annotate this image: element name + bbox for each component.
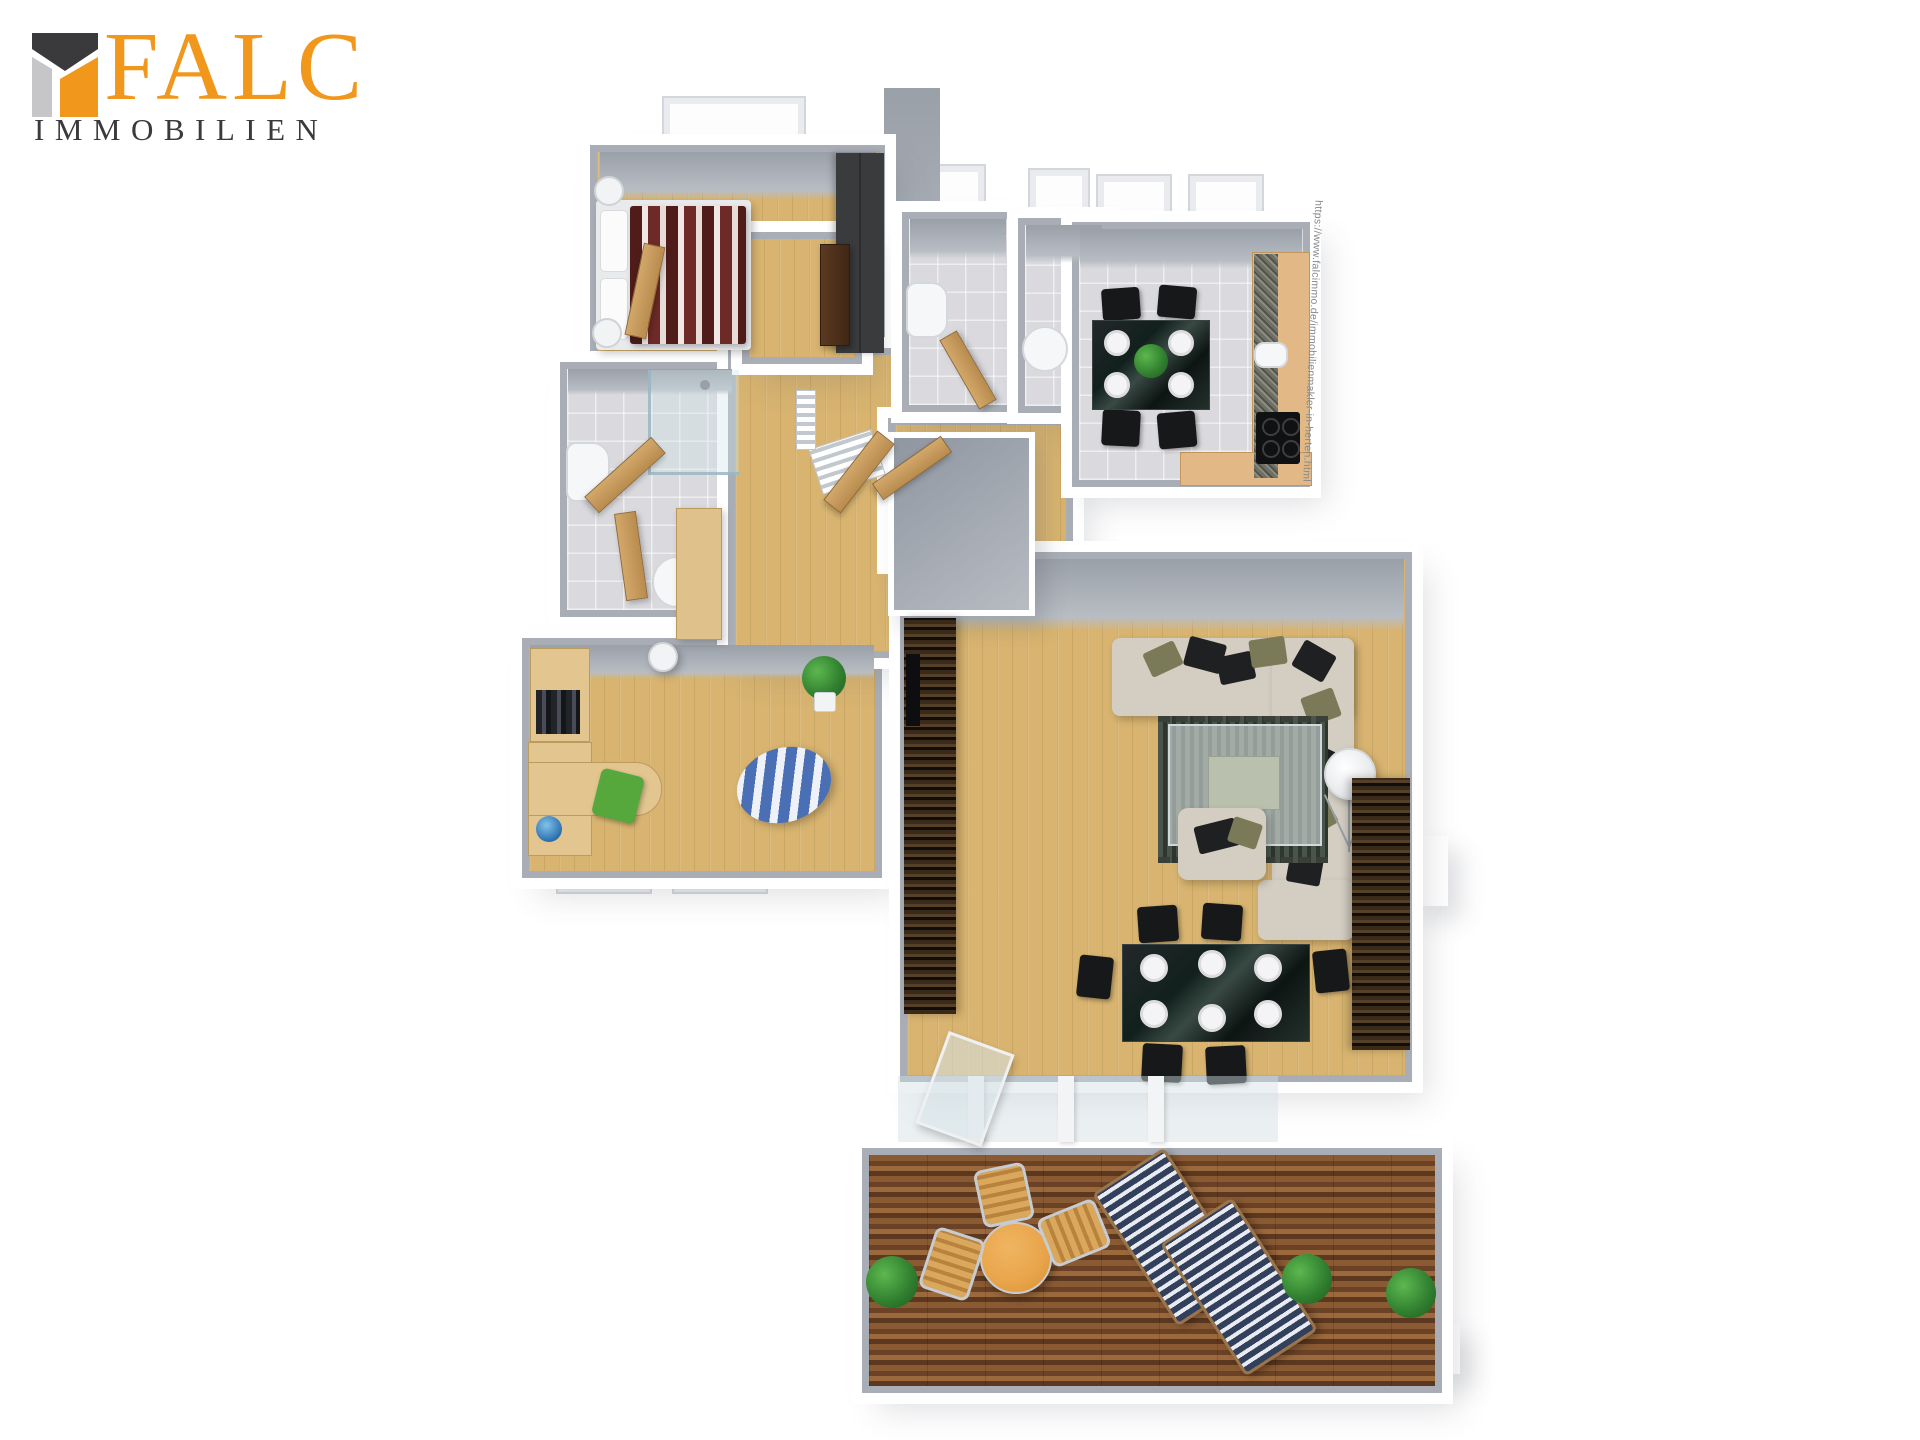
- plant-pot: [814, 692, 836, 712]
- bedside-lamp: [594, 176, 624, 206]
- plate: [1140, 1000, 1168, 1028]
- plate: [1168, 372, 1194, 398]
- glass-mullion: [1058, 1076, 1074, 1142]
- wall-face: [600, 152, 876, 200]
- cushion: [1248, 636, 1288, 669]
- round-basin: [1022, 326, 1068, 372]
- plate: [1140, 954, 1168, 982]
- kitchen-sink: [1254, 342, 1288, 368]
- floor-plan: https://www.falcimmo.de/immobilienmakler…: [0, 0, 1920, 1440]
- kitchen-chair: [1157, 410, 1198, 449]
- burner-icon: [1282, 418, 1300, 436]
- plate: [1168, 330, 1194, 356]
- kitchen-chair: [1101, 287, 1141, 322]
- plate: [1198, 1004, 1226, 1032]
- plate: [1104, 372, 1130, 398]
- wall-protrusion-right: [1408, 836, 1448, 906]
- books: [536, 690, 580, 734]
- bedside-lamp: [592, 318, 622, 348]
- terrace-plant: [1386, 1268, 1436, 1318]
- burner-icon: [1262, 418, 1280, 436]
- kitchen-window: [1096, 174, 1172, 224]
- plate: [1254, 954, 1282, 982]
- wall-face: [910, 219, 1006, 259]
- sofa-chaise: [1258, 880, 1354, 940]
- kitchen-window: [1188, 174, 1264, 224]
- plate: [1104, 330, 1130, 356]
- burner-icon: [1282, 440, 1300, 458]
- radiator: [796, 390, 816, 450]
- burner-icon: [1262, 440, 1280, 458]
- hall-cabinet: [676, 508, 722, 640]
- bed-pillow: [600, 210, 628, 272]
- plate: [1254, 1000, 1282, 1028]
- apartment-door: [820, 244, 850, 346]
- dining-chair: [1312, 948, 1350, 993]
- plate: [1198, 950, 1226, 978]
- kitchen-chair: [1157, 284, 1198, 319]
- tv-screen: [906, 654, 920, 726]
- toilet: [906, 282, 948, 338]
- dining-chair: [1076, 954, 1114, 999]
- vase: [648, 642, 678, 672]
- terrace-plant: [1282, 1254, 1332, 1304]
- dining-chair: [1201, 903, 1243, 942]
- table-plant: [1134, 344, 1168, 378]
- sideboard: [1352, 778, 1410, 1050]
- globe: [536, 816, 562, 842]
- terrace-plant: [866, 1256, 918, 1308]
- dining-chair: [1137, 905, 1179, 944]
- glass-mullion: [1148, 1076, 1164, 1142]
- coffee-table-tray: [1208, 756, 1280, 810]
- kitchen-chair: [1101, 409, 1141, 447]
- shower-room-window: [1028, 168, 1090, 218]
- shower: [648, 370, 739, 475]
- shower-head-icon: [700, 380, 710, 390]
